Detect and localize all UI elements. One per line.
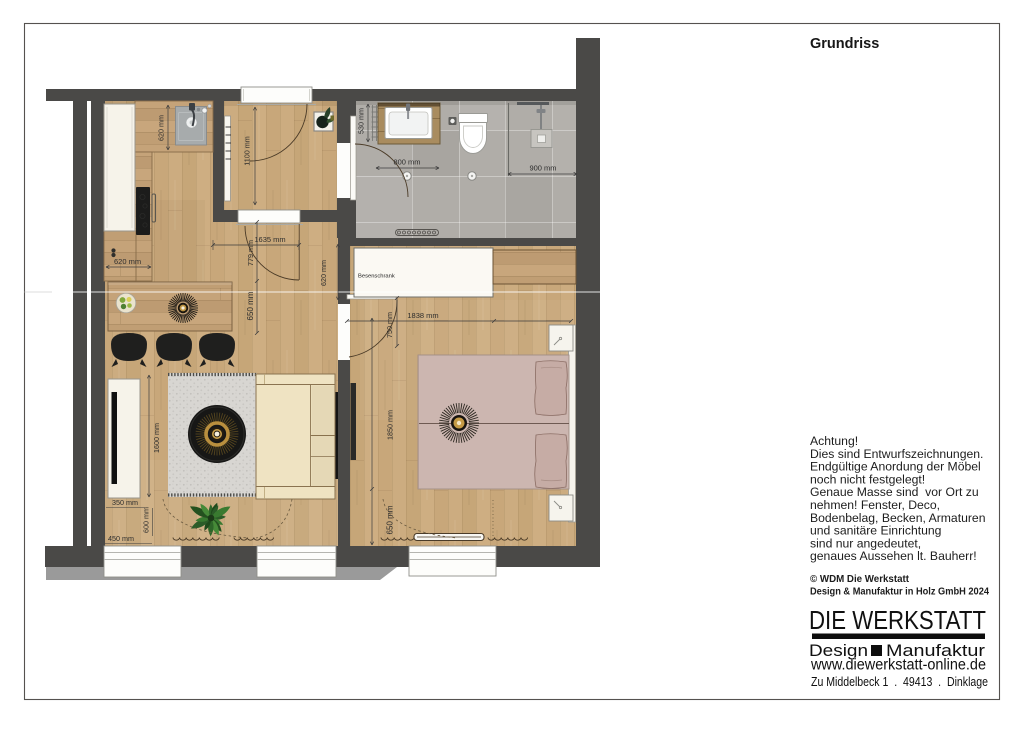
svg-text:1100 mm: 1100 mm <box>242 136 251 165</box>
svg-text:© WDM Die Werkstatt: © WDM Die Werkstatt <box>810 574 909 585</box>
svg-text:650 mm: 650 mm <box>246 291 255 320</box>
svg-text:Design & Manufaktur in Holz Gm: Design & Manufaktur in Holz GmbH 2024 <box>810 587 989 598</box>
svg-text:650 mm: 650 mm <box>386 505 395 534</box>
svg-text:Zu Middelbeck 1 . 49413 .: Zu Middelbeck 1 . 49413 . Dinklage <box>811 674 988 689</box>
svg-text:620 mm: 620 mm <box>156 115 165 141</box>
svg-text:600 mm: 600 mm <box>141 507 150 533</box>
svg-text:www.diewerkstatt-online.de: www.diewerkstatt-online.de <box>810 657 986 674</box>
svg-text:1635 mm: 1635 mm <box>254 235 285 244</box>
svg-text:620 mm: 620 mm <box>319 260 328 286</box>
svg-text:1600 mm: 1600 mm <box>152 423 161 453</box>
svg-text:620 mm: 620 mm <box>114 257 141 266</box>
svg-text:350 mm: 350 mm <box>112 498 138 507</box>
svg-text:750 mm: 750 mm <box>385 312 394 338</box>
svg-text:800 mm: 800 mm <box>393 158 420 167</box>
svg-text:1850 mm: 1850 mm <box>385 410 394 440</box>
svg-text:779 mm: 779 mm <box>246 240 255 266</box>
svg-text:Grundriss: Grundriss <box>810 36 879 52</box>
svg-text:530 mm: 530 mm <box>356 108 365 134</box>
svg-text:900 mm: 900 mm <box>529 164 556 173</box>
svg-text:450 mm: 450 mm <box>108 534 134 543</box>
svg-text:Besenschrank: Besenschrank <box>358 274 395 280</box>
svg-text:DIE WERKSTATT: DIE WERKSTATT <box>809 607 986 635</box>
svg-text:1838 mm: 1838 mm <box>407 311 438 320</box>
